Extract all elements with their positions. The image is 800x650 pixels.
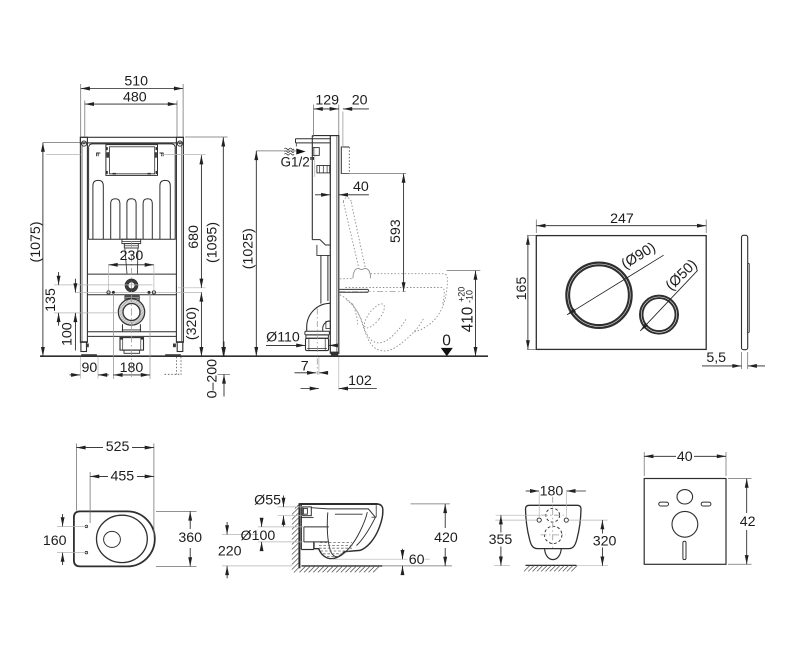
svg-text:480: 480 bbox=[123, 90, 147, 106]
svg-text:60: 60 bbox=[409, 552, 425, 568]
svg-text:355: 355 bbox=[489, 532, 513, 548]
svg-text:160: 160 bbox=[43, 533, 67, 549]
svg-text:455: 455 bbox=[110, 469, 134, 485]
svg-text:-10: -10 bbox=[465, 290, 475, 303]
svg-text:680: 680 bbox=[186, 225, 202, 249]
svg-text:180: 180 bbox=[540, 484, 564, 500]
svg-text:0–200: 0–200 bbox=[205, 359, 221, 399]
svg-text:G1/2": G1/2" bbox=[281, 154, 315, 169]
svg-text:360: 360 bbox=[178, 530, 202, 546]
svg-text:5,5: 5,5 bbox=[706, 350, 726, 366]
svg-text:320: 320 bbox=[593, 533, 617, 549]
svg-text:410: 410 bbox=[459, 307, 476, 333]
svg-text:Ø55: Ø55 bbox=[254, 493, 281, 509]
svg-text:40: 40 bbox=[677, 449, 693, 465]
svg-text:420: 420 bbox=[434, 530, 458, 546]
svg-text:525: 525 bbox=[106, 439, 130, 455]
svg-text:40: 40 bbox=[353, 179, 369, 195]
svg-text:165: 165 bbox=[514, 277, 530, 301]
svg-text:247: 247 bbox=[610, 211, 634, 227]
svg-text:510: 510 bbox=[124, 74, 148, 90]
svg-text:(1075): (1075) bbox=[28, 221, 44, 262]
svg-text:7: 7 bbox=[301, 358, 309, 374]
svg-text:180: 180 bbox=[120, 360, 144, 376]
svg-text:(1025): (1025) bbox=[241, 228, 257, 269]
svg-text:593: 593 bbox=[388, 219, 404, 243]
svg-text:Ø110: Ø110 bbox=[266, 330, 300, 346]
svg-text:230: 230 bbox=[120, 248, 144, 264]
svg-text:0: 0 bbox=[442, 333, 451, 350]
svg-text:100: 100 bbox=[60, 322, 76, 346]
svg-text:135: 135 bbox=[43, 288, 59, 312]
svg-text:(320): (320) bbox=[184, 307, 200, 340]
svg-text:(1095): (1095) bbox=[204, 222, 220, 263]
svg-text:20: 20 bbox=[352, 92, 368, 108]
svg-text:220: 220 bbox=[218, 543, 242, 559]
svg-text:42: 42 bbox=[740, 514, 756, 530]
svg-text:Ø100: Ø100 bbox=[241, 528, 276, 544]
svg-text:129: 129 bbox=[315, 92, 339, 108]
svg-text:90: 90 bbox=[82, 360, 98, 376]
svg-text:102: 102 bbox=[348, 373, 372, 389]
